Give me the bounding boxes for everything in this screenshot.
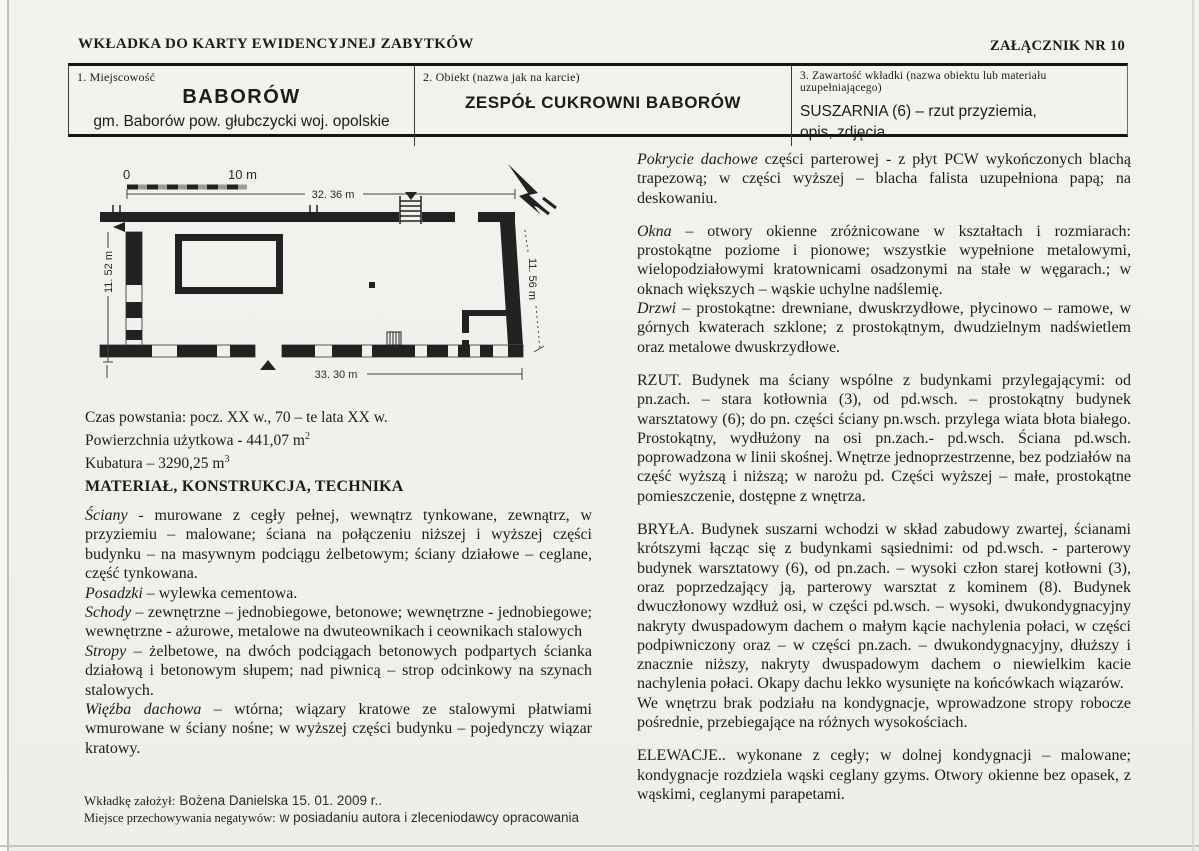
cell-object: 2. Obiekt (nazwa jak na karcie) ZESPÓŁ C… (414, 66, 791, 146)
page-title: WKŁADKA DO KARTY EWIDENCYJNEJ ZABYTKÓW (78, 36, 474, 53)
contents-label: 3. Zawartość wkładki (nazwa obiektu lub … (800, 70, 1119, 94)
door-marker-left (113, 222, 125, 232)
paragraph-wnetrze: We wnętrzu brak podziału na kondygnacje,… (637, 694, 1131, 733)
paragraph-okna: Okna – otwory okienne zróżnicowane w ksz… (637, 222, 1131, 299)
cell-locality: 1. Miejscowość BABORÓW gm. Baborów pow. … (69, 66, 414, 146)
stairs-symbol-top (400, 196, 421, 224)
locality-label: 1. Miejscowość (77, 70, 406, 85)
dim-bottom-label: 33. 30 m (315, 369, 358, 381)
building-facts: Czas powstania: pocz. XX w., 70 – te lat… (85, 404, 591, 473)
scale-bar: 0 10 m (123, 167, 257, 187)
scan-edge-left-line (7, 0, 9, 851)
object-label: 2. Obiekt (nazwa jak na karcie) (423, 70, 783, 85)
footer: Wkładkę założył: Bożena Danielska 15. 01… (84, 792, 579, 827)
floor-plan-figure: 0 10 m 32. 36 m (70, 148, 610, 398)
paragraph-stropy: Stropy – żelbetowe, na dwóch podciągach … (85, 642, 592, 700)
dim-left-label: 11. 52 m (103, 251, 115, 293)
section-title: MATERIAŁ, KONSTRUKCJA, TECHNIKA (85, 478, 404, 496)
paragraph-sciany: Ściany - murowane z cegły pełnej, wewnąt… (85, 506, 592, 584)
dimension-left: 11. 52 m (103, 232, 115, 362)
info-table: 1. Miejscowość BABORÓW gm. Baborów pow. … (68, 63, 1128, 137)
inner-room (179, 238, 280, 291)
scale-ten-label: 10 m (228, 167, 257, 182)
footer-line-negatives: Miejsce przechowywania negatywów: w posi… (84, 809, 579, 827)
fact-row: Kubatura – 3290,25 m3 (85, 450, 591, 473)
building-outline (100, 192, 523, 370)
dim-top-label: 32. 36 m (312, 189, 355, 201)
entrance-marker (260, 360, 276, 370)
contents-line-1: SUSZARNIA (6) – rzut przyziemia, (800, 101, 1119, 122)
scale-zero-label: 0 (123, 167, 130, 182)
paragraph-schody: Schody – zewnętrzne – jednobiegowe, beto… (85, 603, 592, 642)
dimension-top: 32. 36 m (127, 189, 515, 201)
scan-edge-right-line (1192, 0, 1194, 851)
paragraph-posadzki: Posadzki – wylewka cementowa. (85, 584, 592, 603)
contents-name: SUSZARNIA (6) – rzut przyziemia, opis, z… (800, 101, 1119, 143)
object-name: ZESPÓŁ CUKROWNI BABORÓW (423, 93, 783, 113)
attachment-number: ZAŁĄCZNIK NR 10 (990, 38, 1125, 55)
stairs-symbol-bottom (387, 332, 401, 345)
paragraph-wiezba: Więźba dachowa – wtórna; wiązary kratowe… (85, 700, 592, 758)
stairs-direction-marker (405, 192, 417, 200)
fact-row: Czas powstania: pocz. XX w., 70 – te lat… (85, 404, 591, 427)
material-section: Ściany - murowane z cegły pełnej, wewnąt… (85, 506, 592, 758)
interior-elements (179, 238, 511, 346)
locality-name: BABORÓW (77, 86, 406, 109)
paragraph-elewacje: ELEWACJE.. wykonane z cegły; w dolnej ko… (637, 746, 1131, 804)
record-card-page: WKŁADKA DO KARTY EWIDENCYJNEJ ZABYTKÓW Z… (0, 0, 1199, 851)
cell-contents: 3. Zawartość wkładki (nazwa obiektu lub … (791, 66, 1127, 146)
paragraph-bryla: BRYŁA. Budynek suszarni wchodzi w skład … (637, 520, 1131, 694)
scan-edge-left-strip (0, 0, 7, 851)
column-symbol (369, 282, 375, 288)
paragraph-rzut: RZUT. Budynek ma ściany wspólne z budynk… (637, 371, 1131, 506)
dimension-bottom: 33. 30 m (107, 365, 522, 381)
scan-edge-bottom-line (0, 845, 1199, 847)
footer-line-author: Wkładkę założył: Bożena Danielska 15. 01… (84, 792, 579, 809)
dimension-right: 11. 56 m (525, 230, 544, 352)
fact-row: Powierzchnia użytkowa - 441,07 m2 (85, 427, 591, 450)
locality-admin: gm. Baborów pow. głubczycki woj. opolski… (77, 113, 406, 131)
paragraph-pokrycie: Pokrycie dachowe części parterowej - z p… (637, 150, 1131, 208)
description-column: Pokrycie dachowe części parterowej - z p… (637, 150, 1131, 804)
paragraph-drzwi: Drzwi – prostokątne: drewniane, dwuskrzy… (637, 299, 1131, 357)
dim-right-label: 11. 56 m (526, 258, 538, 300)
contents-line-2: opis, zdjęcia (800, 122, 1119, 143)
